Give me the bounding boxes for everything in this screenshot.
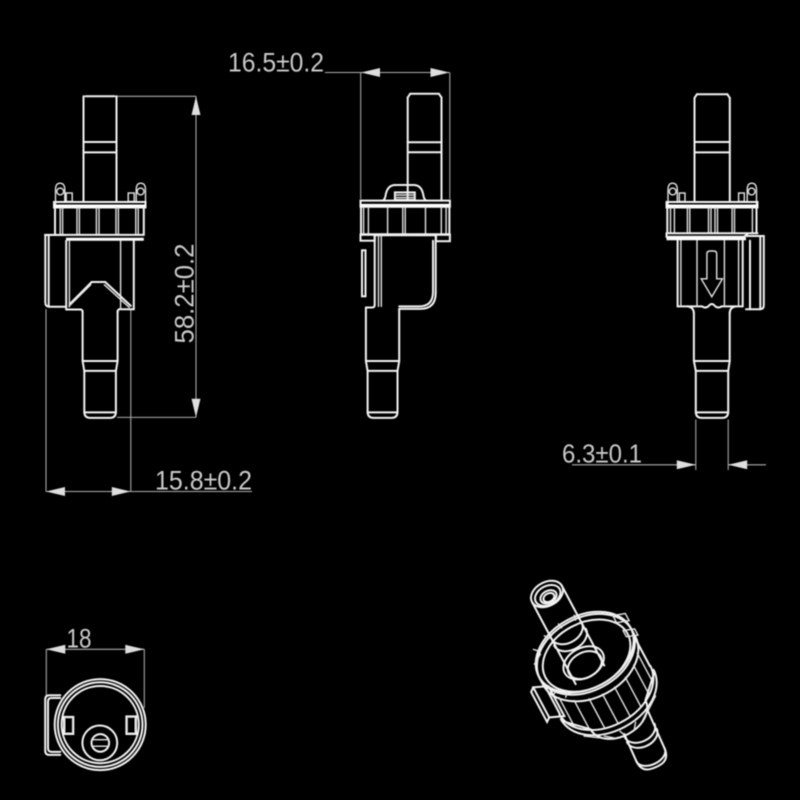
svg-text:6.3±0.1: 6.3±0.1	[562, 439, 642, 469]
svg-text:18: 18	[67, 624, 92, 654]
svg-text:58.2±0.2: 58.2±0.2	[170, 244, 200, 344]
svg-text:16.5±0.2: 16.5±0.2	[228, 48, 324, 78]
svg-text:15.8±0.2: 15.8±0.2	[155, 466, 252, 496]
